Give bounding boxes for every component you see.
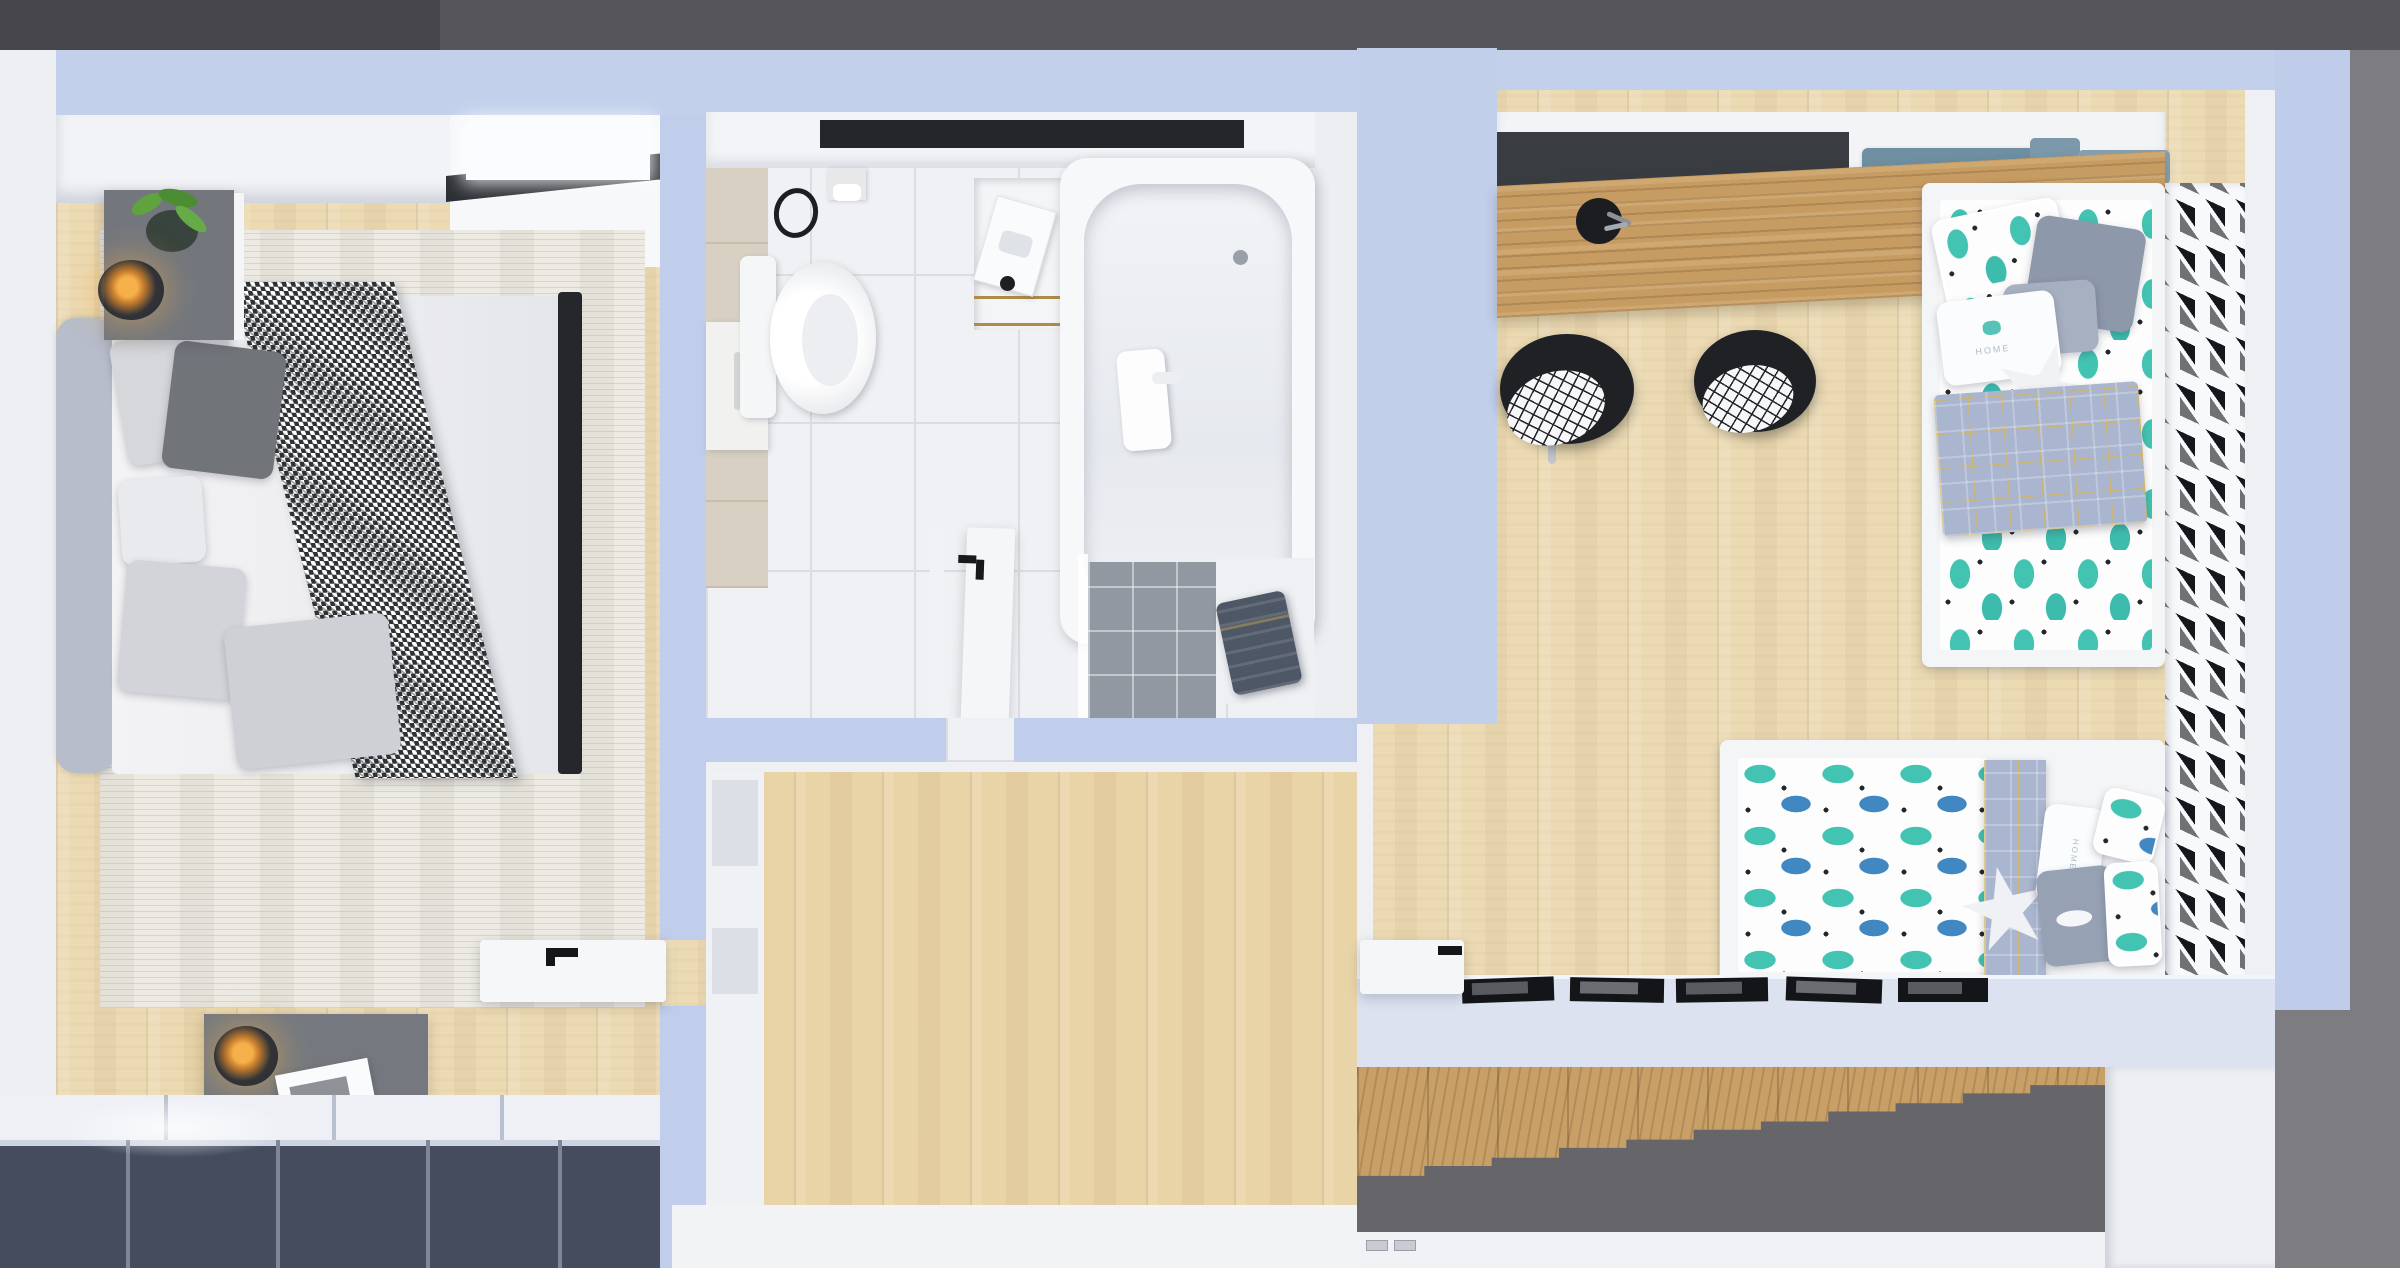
pillow-white-1	[117, 475, 207, 567]
ceiling-vent-slot	[820, 120, 1244, 148]
bathroom-door-handle-a	[958, 555, 976, 564]
kbr-plaid-blanket	[1933, 381, 2147, 537]
background-top-left-corner	[0, 0, 440, 52]
bathtub-drain	[1233, 250, 1248, 265]
hallway-left-wall-face	[706, 772, 764, 1205]
bedroom-door-open	[480, 940, 666, 1002]
hallway-doorframe-2	[712, 928, 758, 994]
staircase-bottom-wall	[1357, 1232, 2105, 1268]
ledge-frame-5	[1898, 978, 1988, 1002]
wardrobe-gap-4	[558, 1140, 562, 1268]
bed-headboard	[56, 318, 114, 773]
ledge-frame-3	[1676, 977, 1768, 1003]
hallway-doorframe-1	[712, 780, 758, 866]
wall-right	[2275, 50, 2350, 1010]
tissue-box-slot	[997, 229, 1034, 259]
pillow-dark-1	[161, 340, 288, 481]
hallway-threshold-strip	[706, 762, 1357, 772]
kbb-cloud-mark	[2055, 909, 2092, 929]
apartment-top-view: KAYAKFISHING: The Revolution HOME HOME	[0, 0, 2400, 1268]
hand-shower	[1116, 348, 1173, 452]
frame-art	[1686, 982, 1742, 995]
bathroom-half-wall	[930, 528, 944, 720]
ledge-frame-2	[1570, 977, 1664, 1003]
globe-lamp-top	[98, 260, 164, 320]
light-switch-2	[1394, 1240, 1416, 1251]
kbr-llama-mark	[1982, 320, 2002, 336]
bedroom-door-handle-stem	[546, 948, 555, 966]
bed-footboard	[558, 292, 582, 774]
kbr-home-text: HOME	[1975, 343, 2011, 357]
frame-art	[1580, 981, 1638, 994]
bathroom-door-handle-b	[976, 560, 985, 580]
niche-gold-frame	[974, 296, 1062, 326]
shower-glass	[1078, 554, 1088, 720]
wall-kidsroom-left	[1357, 48, 1497, 724]
ledge-frame-4	[1786, 976, 1883, 1003]
wall-bathroom-bottom-left	[660, 718, 946, 762]
wardrobe-gap-2	[276, 1140, 280, 1268]
kidsroom-door-handle	[1438, 946, 1462, 955]
kidsroom-door-open	[1360, 940, 1464, 994]
bathroom-door-open	[961, 527, 1016, 723]
pillow-light-3	[223, 612, 402, 770]
outer-wall-left	[0, 50, 56, 1095]
desk-pencil-holder	[1576, 198, 1622, 244]
kbb-cactus-pillow-2	[2103, 861, 2162, 968]
frame-art	[1908, 982, 1962, 994]
hand-shower-hose	[1152, 372, 1180, 384]
frame-art	[1472, 981, 1528, 995]
toilet-bowl-inner	[802, 294, 858, 386]
frame-art	[1796, 981, 1856, 995]
wardrobe-gap-1	[126, 1140, 130, 1268]
nightstand-top-edge	[234, 193, 244, 340]
wardrobe-spotlight-glow	[60, 1098, 290, 1158]
wardrobe-gap-3	[426, 1140, 430, 1268]
ledge-frame-1	[1462, 976, 1555, 1003]
wall-bathroom-bottom-right	[1014, 718, 1357, 762]
globe-lamp-bottom	[214, 1026, 278, 1086]
kbb-home-text: HOME	[2068, 838, 2081, 871]
bathtub-basin	[1084, 184, 1292, 616]
kids-bed-bottom-duvet	[1738, 758, 1988, 972]
hallway-floor	[706, 762, 1357, 1205]
wall-bedroom-right-upper	[660, 115, 706, 943]
triangle-panel	[2165, 183, 2245, 985]
shower-floor	[1088, 562, 1216, 720]
toilet-paper-roll	[833, 184, 861, 201]
bedroom-door-threshold	[660, 940, 706, 1006]
closet-light-panel	[466, 122, 650, 180]
kidsroom-right-wall-face	[2245, 90, 2275, 985]
niche-bottle	[1000, 276, 1015, 291]
hallway-bottom-landing	[672, 1205, 1357, 1268]
stair-right-wall-face	[2105, 1067, 2275, 1268]
light-switch-1	[1366, 1240, 1388, 1251]
bathroom-right-wall-face	[1315, 112, 1357, 720]
bathroom-doorway-threshold	[946, 718, 1014, 762]
wardrobe-front	[0, 1140, 672, 1268]
